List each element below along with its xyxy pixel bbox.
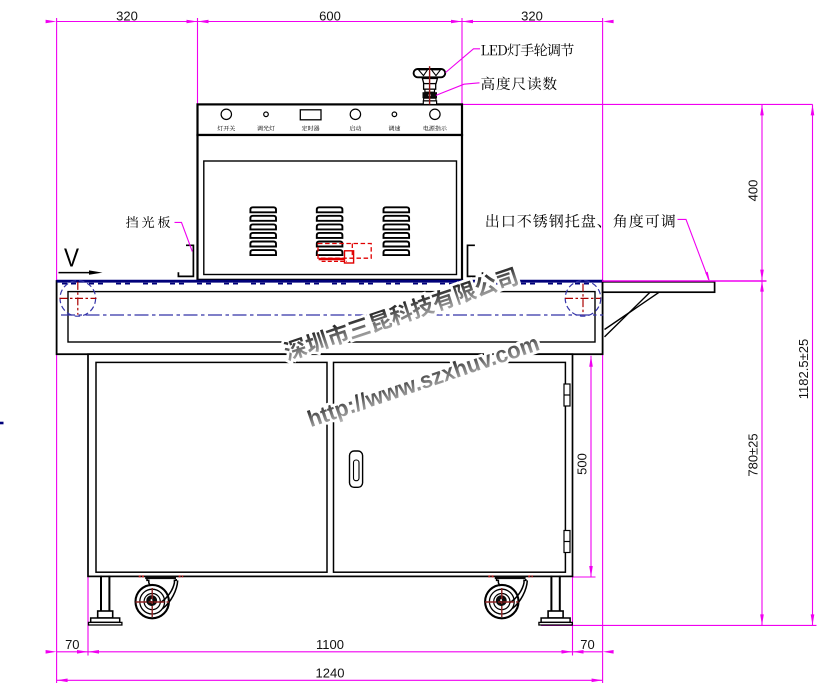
svg-text:780±25: 780±25 xyxy=(746,433,761,476)
svg-text:320: 320 xyxy=(521,9,543,24)
svg-text:70: 70 xyxy=(580,637,594,652)
svg-text:500: 500 xyxy=(575,453,590,475)
svg-text:320: 320 xyxy=(116,9,138,24)
svg-text:70: 70 xyxy=(65,637,79,652)
svg-text:1100: 1100 xyxy=(316,637,344,652)
svg-text:1182.5±25: 1182.5±25 xyxy=(796,339,811,399)
svg-text:1240: 1240 xyxy=(316,665,345,680)
svg-text:V: V xyxy=(64,243,80,273)
svg-text:400: 400 xyxy=(746,180,761,202)
svg-text:600: 600 xyxy=(319,9,341,24)
